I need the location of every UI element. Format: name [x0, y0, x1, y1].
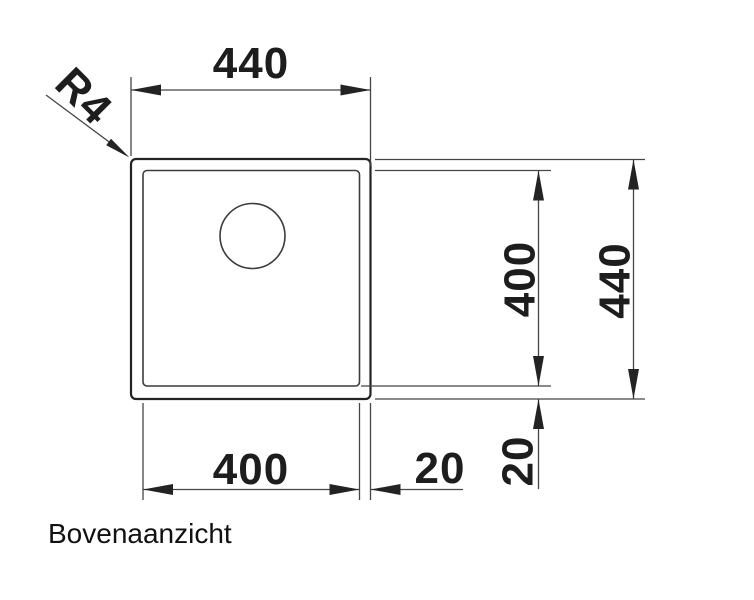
dim-right-rim-gap-label: 20 [494, 436, 543, 487]
dim-top-width-label: 440 [213, 39, 289, 88]
dim-bottom-rim-gap-label: 20 [415, 444, 466, 493]
dim-right-inner-height-label: 400 [496, 241, 545, 317]
dim-right-outer-height-label: 440 [591, 242, 640, 318]
radius-label: R4 [46, 58, 122, 134]
radius-leader-arrowhead [106, 139, 129, 158]
arrowhead-left [143, 484, 173, 495]
dim-right-inner-height: 400 [361, 171, 551, 387]
view-title: Bovenaanzicht [48, 518, 232, 549]
arrowhead-right [341, 85, 371, 96]
arrowhead-left [131, 85, 161, 96]
arrowhead-left [371, 484, 401, 495]
outer-rim-outline [131, 159, 371, 399]
arrowhead-up [533, 399, 544, 429]
radius-callout: R4 [46, 58, 130, 157]
dim-bottom-rim-gap: 20 [371, 403, 466, 500]
technical-drawing: R4 440 400 440 20 40 [0, 0, 754, 600]
dim-bottom-inner-width: 400 [143, 403, 360, 500]
dim-right-rim-gap: 20 [494, 399, 545, 489]
drain-circle [220, 204, 285, 269]
arrowhead-down [628, 369, 639, 399]
arrowhead-up [628, 160, 639, 190]
sink-outline [131, 159, 371, 399]
dim-top-width: 440 [131, 39, 371, 166]
arrowhead-right [330, 484, 360, 495]
arrowhead-down [533, 356, 544, 386]
dim-bottom-inner-width-label: 400 [213, 445, 289, 494]
arrowhead-up [533, 171, 544, 201]
